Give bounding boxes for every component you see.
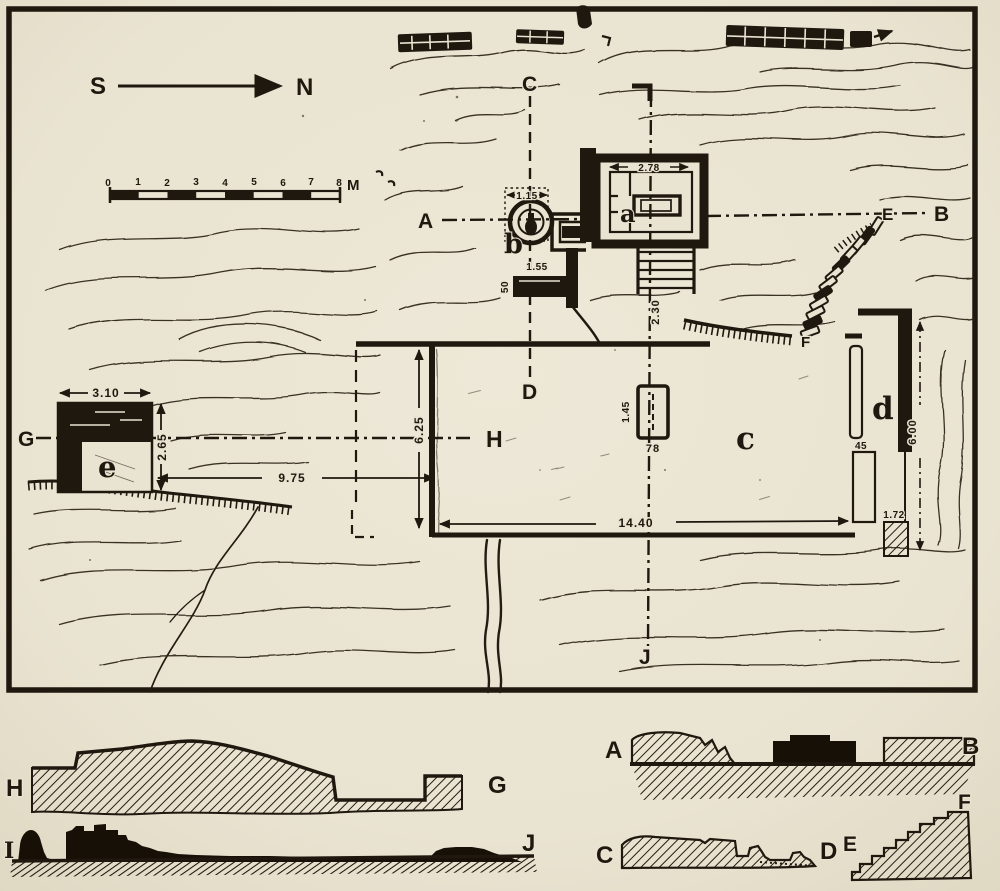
scale-tick-2: 2 [164,178,170,189]
section-ab-underground [632,764,974,800]
dim-altar-length: 1.45 [621,401,632,422]
scale-tick-1: 1 [135,177,141,188]
plan-label-d: D [522,381,537,404]
section-a-b: A B [605,732,979,800]
site-plan-figure: S N 0 1 2 3 4 5 6 7 8 M [0,0,1000,891]
plan-label-f: F [801,334,810,351]
plan-label-a: A [418,210,433,233]
scale-unit-label: M [347,177,360,194]
plan-label-b: B [934,203,949,226]
trench-d-end-block [884,522,908,556]
plan-label-e: E [882,205,893,224]
section-ij-left-label: I [4,838,14,864]
plan-label-g: G [18,428,34,451]
scale-tick-7: 7 [308,177,314,188]
section-ab-right-block [884,738,974,764]
section-ab-right-label: B [962,733,979,760]
section-hg-right-label: G [488,772,507,799]
section-ab-left-label: A [605,737,622,764]
scale-tick-0: 0 [105,178,111,189]
scanned-plate: S N 0 1 2 3 4 5 6 7 8 M [0,0,1000,891]
label-structure-e: e [98,450,116,484]
dim-e-height: 2.65 [155,433,169,460]
section-ij-right-label: J [522,830,535,857]
dim-e-to-court: 9.75 [278,471,305,485]
compass-south-label: S [90,73,106,100]
spur-wall [566,248,578,308]
section-ef-right-label: F [958,791,971,814]
dim-trench-d-length: 6.00 [907,419,919,444]
dim-well-diameter: 1.15 [516,191,537,202]
dim-court-depth: 6.25 [412,416,426,443]
dim-slab-length: 1.55 [526,262,547,273]
section-ef-left-label: E [843,833,857,856]
dim-court-length: 14.40 [618,516,653,530]
dim-slab-width: 50 [500,281,511,293]
scale-tick-4: 4 [222,178,228,189]
scale-tick-6: 6 [280,178,286,189]
label-structure-a: a [620,199,636,228]
dim-altar-width: 78 [646,443,660,455]
dim-trench-d-width: 45 [855,441,867,452]
label-structure-b: b [504,229,523,260]
section-hg-left-label: H [6,775,23,802]
label-structure-d: d [872,391,894,427]
scale-tick-3: 3 [193,177,199,188]
slab [513,276,567,297]
plan-label-j: J [639,646,651,669]
dim-e-width: 3.10 [92,386,119,400]
dim-stair-length: 2.30 [650,299,662,324]
dim-trench-d-end: 1.72 [883,510,904,521]
dim-cella-width: 2.78 [638,163,659,174]
compass-north-label: N [296,74,313,101]
section-cd-left-label: C [596,842,613,869]
scale-tick-8: 8 [336,178,342,189]
section-cd-right-label: D [820,838,837,865]
altar-base [638,386,668,438]
plan-label-c: C [522,73,537,96]
scale-tick-5: 5 [251,177,257,188]
label-structure-c: c [736,421,755,457]
plan-label-h: H [486,426,503,452]
